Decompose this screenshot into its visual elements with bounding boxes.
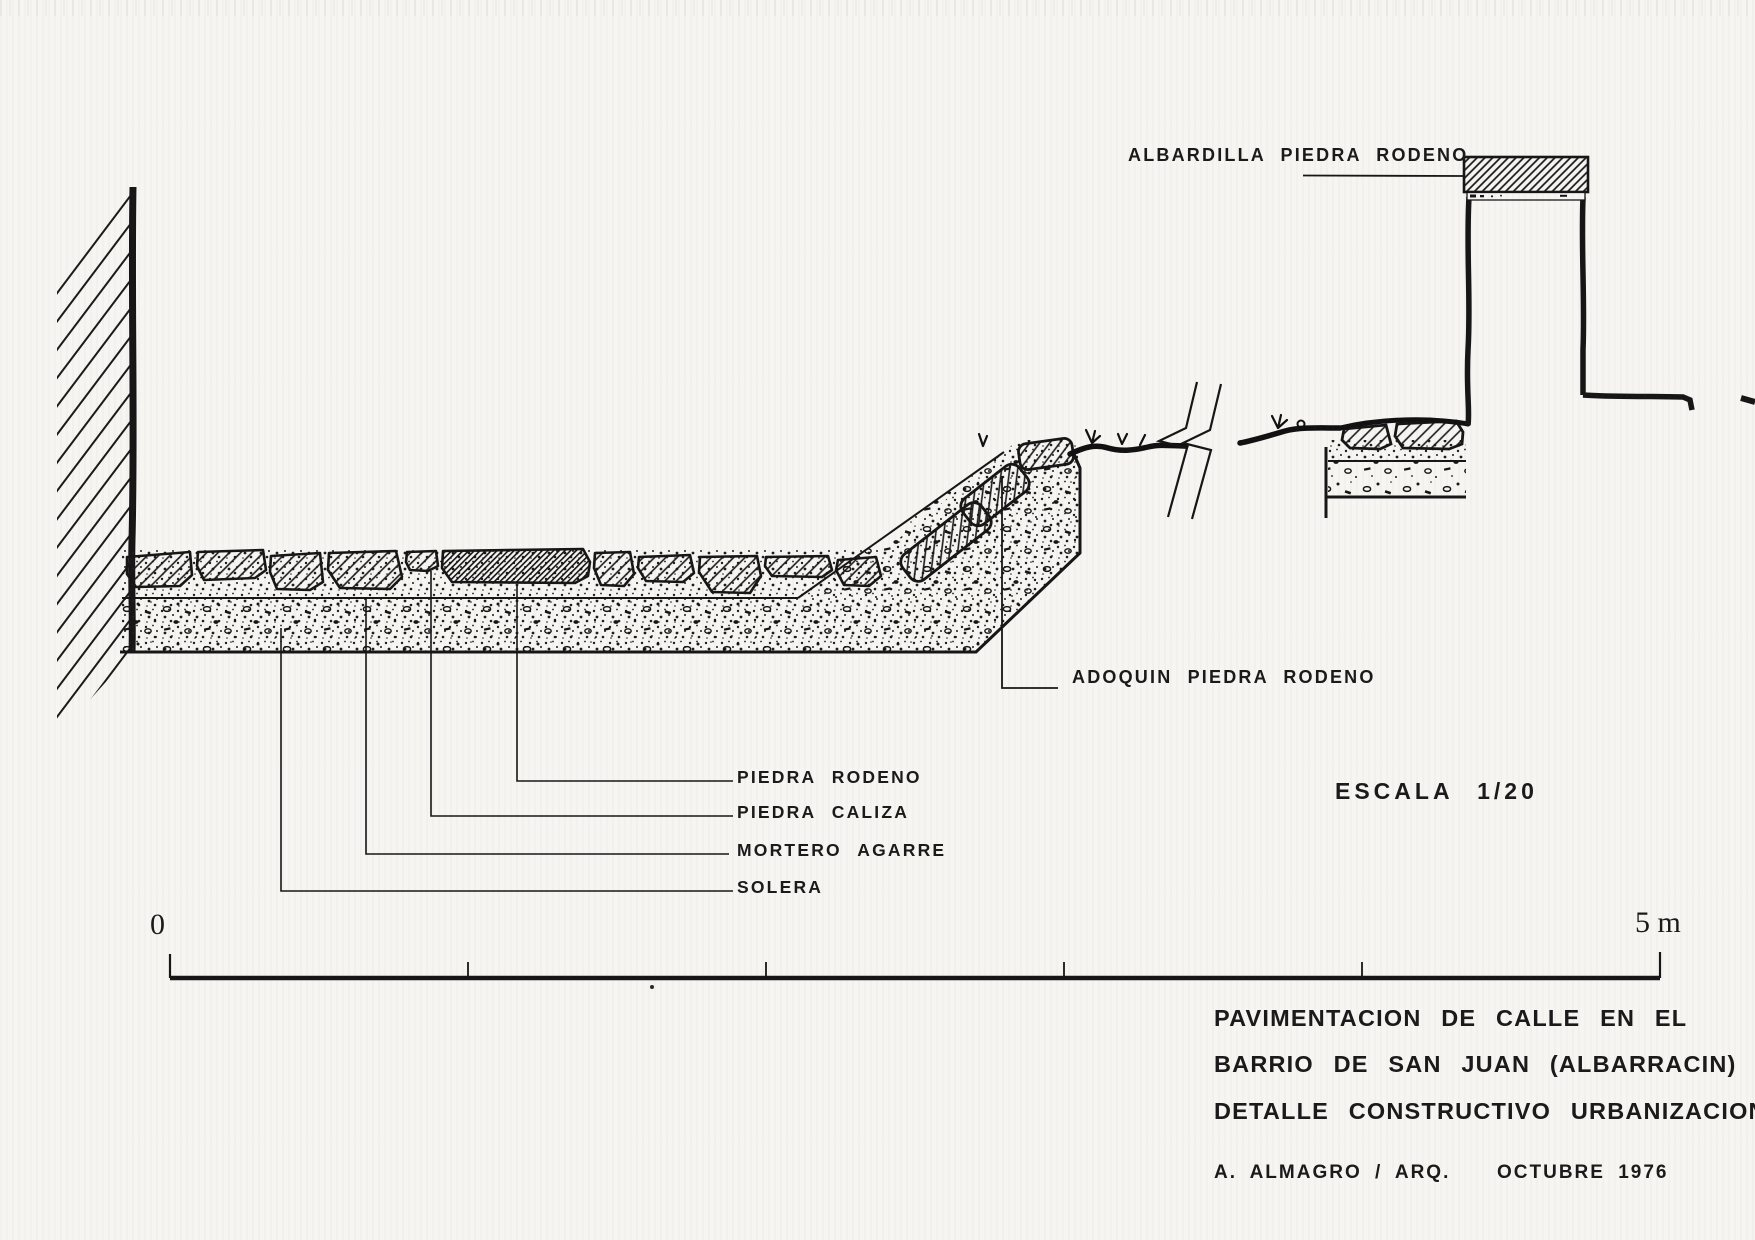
break-symbol [1159,382,1221,519]
edge-line-fragment [1741,398,1755,402]
paving-stone [1395,421,1463,449]
label-escala: ESCALA 1/20 [1335,778,1538,805]
title-line-1: PAVIMENTACION DE CALLE EN EL [1214,1005,1687,1032]
paving-stone [594,552,634,586]
paving-stone [699,556,761,593]
paving-stone [836,557,881,586]
label-adoquin: ADOQUIN PIEDRA RODENO [1072,667,1376,688]
ground-line-right [1240,428,1340,443]
right-solera [1328,462,1466,497]
label-piedra-rodeno: PIEDRA RODENO [737,767,922,788]
label-albardilla: ALBARDILLA PIEDRA RODENO [1128,145,1468,166]
label-mortero-agarre: MORTERO AGARRE [737,840,946,861]
wall-right-edge [1582,197,1583,395]
label-solera: SOLERA [737,877,823,898]
paving-stone [270,553,323,590]
coping-stone [1464,157,1588,192]
scale-bar [170,952,1660,978]
ground-line-left [1070,445,1186,454]
paving-stone [765,556,832,577]
coping-mortar-joint [1467,193,1585,201]
label-piedra-caliza: PIEDRA CALIZA [737,802,909,823]
title-line-2: BARRIO DE SAN JUAN (ALBARRACIN) [1214,1051,1737,1078]
leader-albardilla [1303,176,1464,177]
title-author: A. ALMAGRO / ARQ. [1214,1162,1450,1184]
scale-end-label: 5 m [1635,906,1681,940]
scan-speck [650,985,654,989]
paving-stone [638,555,694,582]
right-pavement [1326,421,1466,518]
drawing-sheet: ALBARDILLA PIEDRA RODENO ADOQUIN PIEDRA … [0,0,1755,1240]
wall-base-line [1583,395,1692,410]
title-line-3: DETALLE CONSTRUCTIVO URBANIZACION [1214,1098,1755,1125]
wall-left-edge [1467,197,1469,425]
title-date: OCTUBRE 1976 [1497,1162,1669,1184]
paving-stone [197,550,266,580]
right-wall [1464,157,1755,425]
leader-solera [281,628,733,891]
paving-stone-rodeno [442,549,590,583]
paving-stone [127,552,192,587]
paving-stone [1342,425,1391,449]
paving-stone [406,551,438,571]
paving-stone [328,551,402,589]
curb-cap-stone [1017,437,1074,470]
scale-start-label: 0 [150,908,165,942]
